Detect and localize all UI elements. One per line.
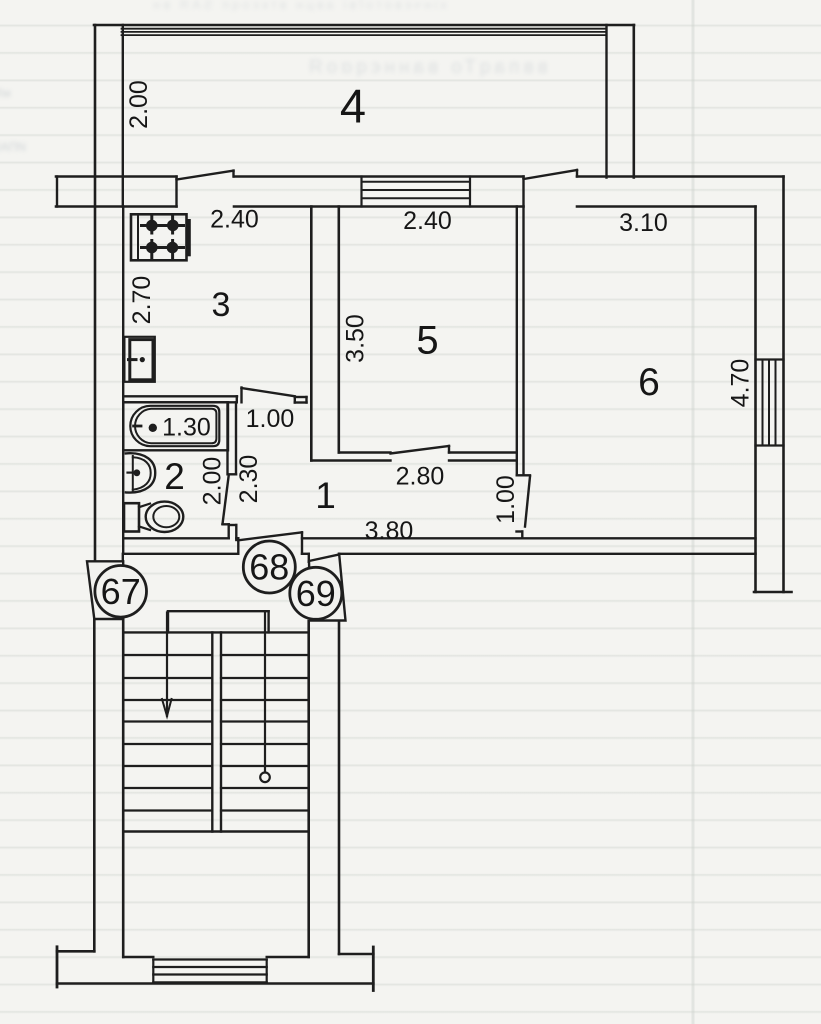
svg-text:5: 5 xyxy=(416,319,438,363)
svg-text:2.70: 2.70 xyxy=(128,276,156,325)
svg-text:2.80: 2.80 xyxy=(396,462,445,490)
svg-text:2.40: 2.40 xyxy=(403,207,452,235)
svg-text:2.40: 2.40 xyxy=(210,206,259,234)
svg-text:1.00: 1.00 xyxy=(246,405,295,433)
svg-text:68: 68 xyxy=(249,547,289,588)
svg-text:69: 69 xyxy=(296,573,336,614)
svg-text:3.50: 3.50 xyxy=(342,314,370,363)
svg-text:1: 1 xyxy=(315,475,336,516)
svg-text:1.00: 1.00 xyxy=(492,475,520,524)
svg-text:6: 6 xyxy=(638,361,660,404)
svg-text:2.00: 2.00 xyxy=(199,457,227,506)
svg-text:1.30: 1.30 xyxy=(162,414,211,442)
svg-text:3: 3 xyxy=(212,286,231,324)
svg-text:2.30: 2.30 xyxy=(235,455,263,504)
svg-text:2: 2 xyxy=(164,456,185,497)
svg-text:3.10: 3.10 xyxy=(619,209,668,237)
svg-text:2.00: 2.00 xyxy=(125,80,153,129)
svg-text:4: 4 xyxy=(340,80,366,133)
svg-text:67: 67 xyxy=(101,571,141,612)
svg-text:4.70: 4.70 xyxy=(727,359,755,408)
svg-text:3.80: 3.80 xyxy=(365,517,414,545)
